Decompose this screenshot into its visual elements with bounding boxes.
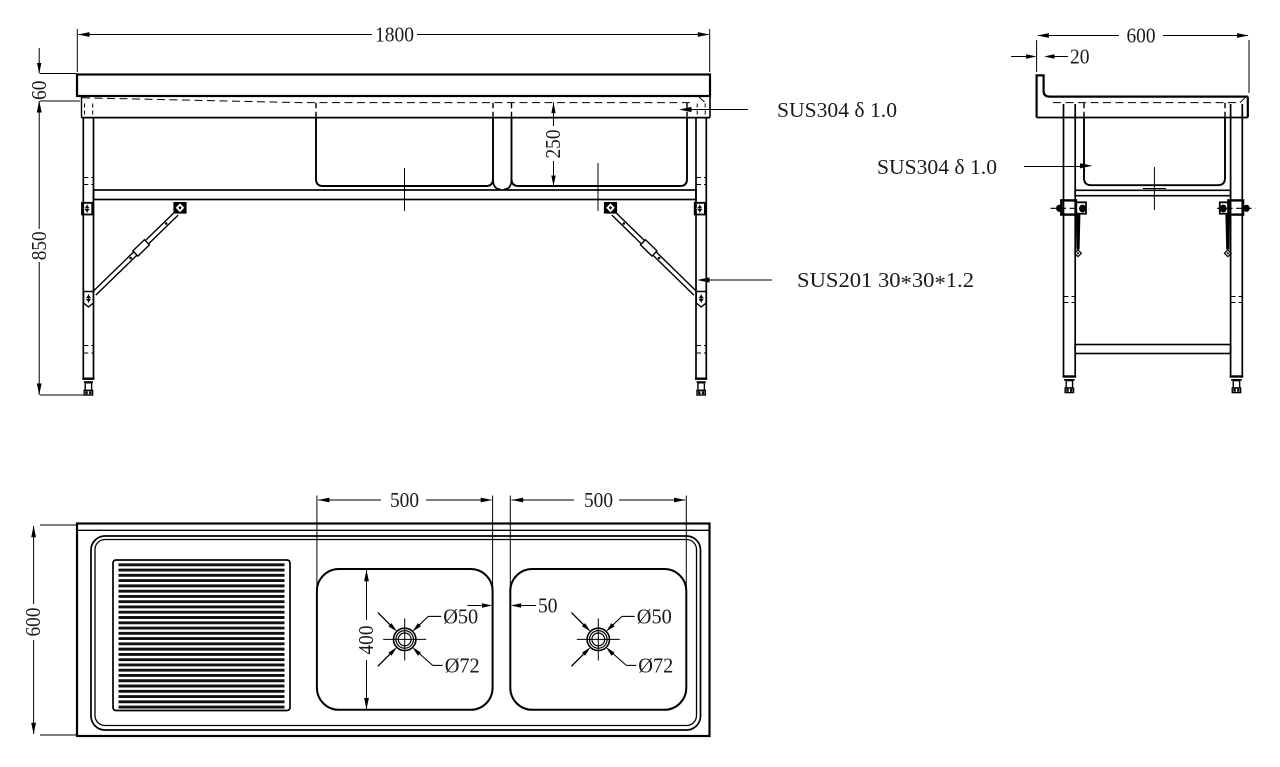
svg-text:Ø72: Ø72 xyxy=(638,653,673,677)
svg-text:20: 20 xyxy=(1070,45,1090,69)
svg-text:50: 50 xyxy=(538,594,558,618)
svg-text:SUS304 δ 1.0: SUS304 δ 1.0 xyxy=(877,155,997,179)
svg-text:SUS201 30*30*1.2: SUS201 30*30*1.2 xyxy=(797,268,974,295)
svg-text:400: 400 xyxy=(354,626,378,655)
svg-text:60: 60 xyxy=(27,80,51,100)
svg-text:600: 600 xyxy=(21,608,45,637)
svg-text:850: 850 xyxy=(27,231,51,260)
svg-text:250: 250 xyxy=(541,130,565,159)
svg-text:Ø50: Ø50 xyxy=(637,604,672,628)
svg-text:SUS304 δ 1.0: SUS304 δ 1.0 xyxy=(777,98,897,122)
svg-text:Ø50: Ø50 xyxy=(443,604,478,628)
svg-text:500: 500 xyxy=(584,488,613,512)
svg-text:1800: 1800 xyxy=(375,23,414,47)
svg-text:600: 600 xyxy=(1127,24,1156,48)
svg-text:500: 500 xyxy=(390,488,419,512)
svg-text:Ø72: Ø72 xyxy=(445,653,480,677)
